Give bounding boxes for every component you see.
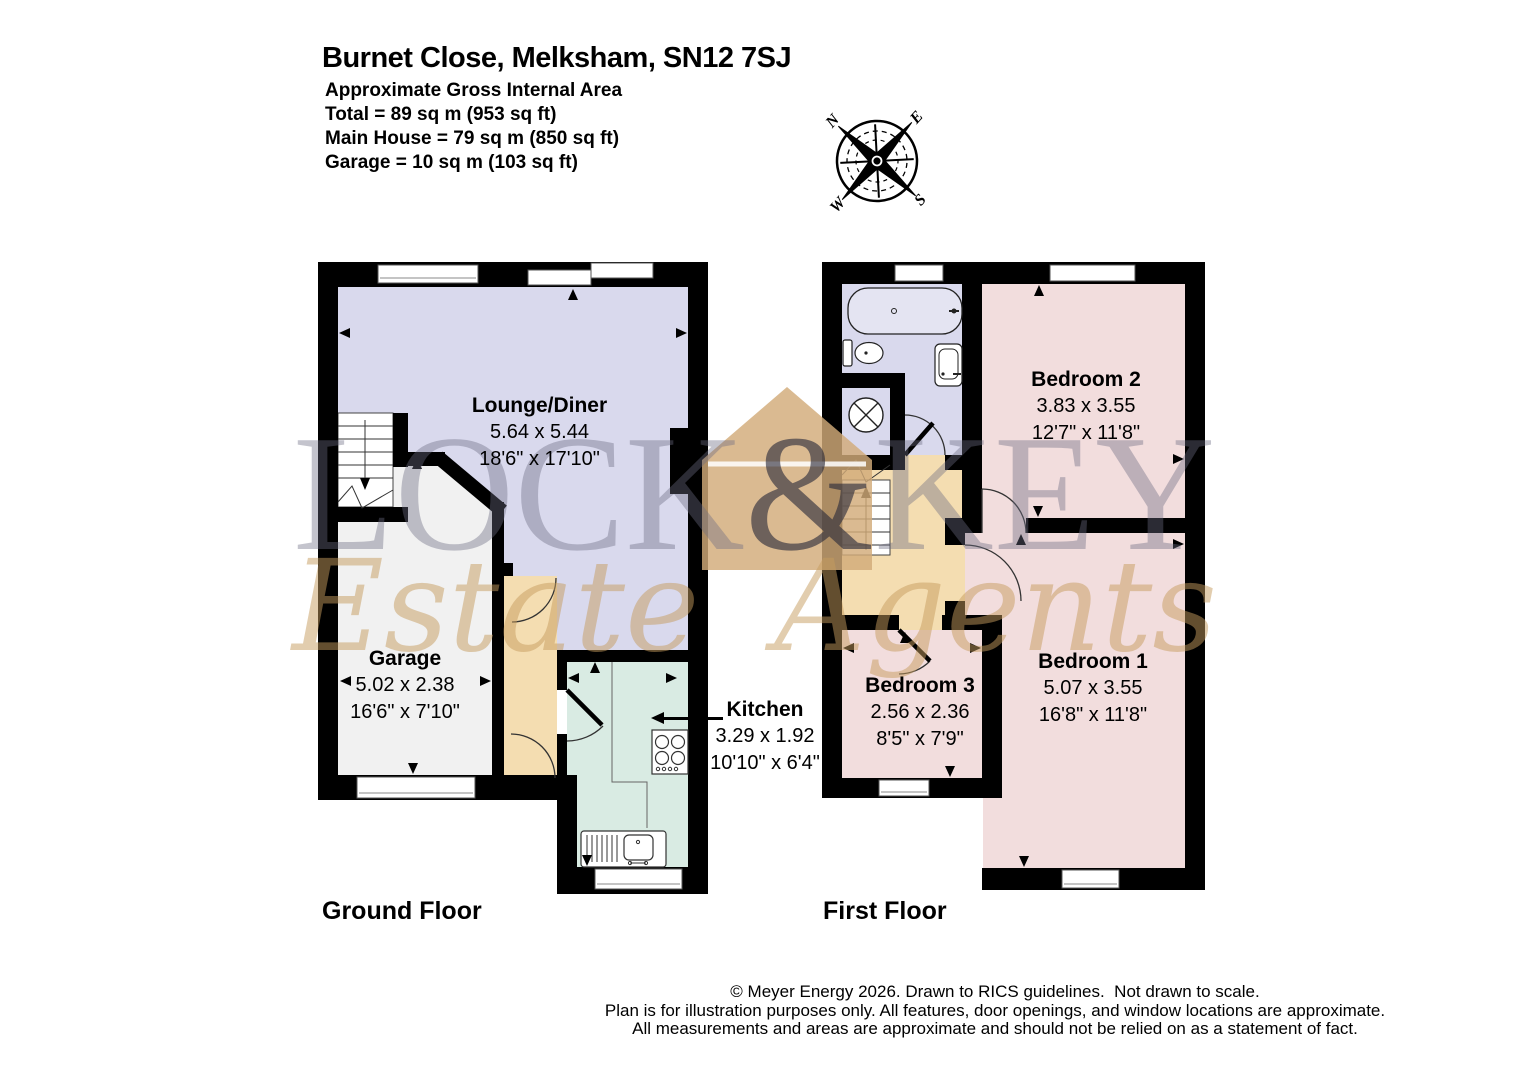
bedroom1-label: Bedroom 1 5.07 x 3.55 16'8" x 11'8" [971,648,1215,729]
disclaimer: © Meyer Energy 2026. Drawn to RICS guide… [470,983,1520,1039]
toilet-icon [843,340,883,366]
bathtub-icon [848,288,962,334]
lounge-label: Lounge/Diner 5.64 x 5.44 18'6" x 17'10" [417,392,662,473]
disclaimer-line-1: © Meyer Energy 2026. Drawn to RICS guide… [470,983,1520,1002]
garage-label: Garage 5.02 x 2.38 16'6" x 7'10" [320,645,490,726]
window [528,270,591,285]
window [378,265,478,283]
first-floor-label: First Floor [823,897,947,926]
chimney-breast [670,428,688,494]
area-garage: Garage = 10 sq m (103 sq ft) [325,152,578,174]
area-heading: Approximate Gross Internal Area [325,80,622,102]
compass-rose-icon: N E S W [812,96,942,226]
window [1050,265,1135,281]
floorplan-page: Burnet Close, Melksham, SN12 7SJ Approxi… [0,0,1528,1080]
kitchen-callout-arrow-icon [651,712,664,724]
window [1062,870,1119,888]
disclaimer-line-3: All measurements and areas are approxima… [470,1020,1520,1039]
window [895,265,943,281]
extractor-fan-icon [849,398,883,432]
kitchen-callout-line [663,717,723,720]
hallway [503,576,557,778]
window [595,869,682,889]
window [879,780,929,796]
kitchen-label: Kitchen 3.29 x 1.92 10'10" x 6'4" [700,696,830,777]
sink-icon [935,344,962,386]
page-title: Burnet Close, Melksham, SN12 7SJ [322,42,791,75]
ground-floor-plan [318,262,710,894]
area-main-house: Main House = 79 sq m (850 sq ft) [325,128,619,150]
garage-door [357,777,475,798]
disclaimer-line-2: Plan is for illustration purposes only. … [470,1002,1520,1021]
hob-icon [652,730,688,774]
compass-s: S [911,191,930,209]
area-total: Total = 89 sq m (953 sq ft) [325,104,556,126]
watermark: LOCK&KEY Estate Agents [0,0,1528,1080]
sink-unit-icon [581,831,666,867]
window [591,263,653,278]
ground-floor-label: Ground Floor [322,897,482,926]
first-floor-plan [822,262,1205,894]
bedroom2-label: Bedroom 2 3.83 x 3.55 12'7" x 11'8" [964,366,1208,447]
